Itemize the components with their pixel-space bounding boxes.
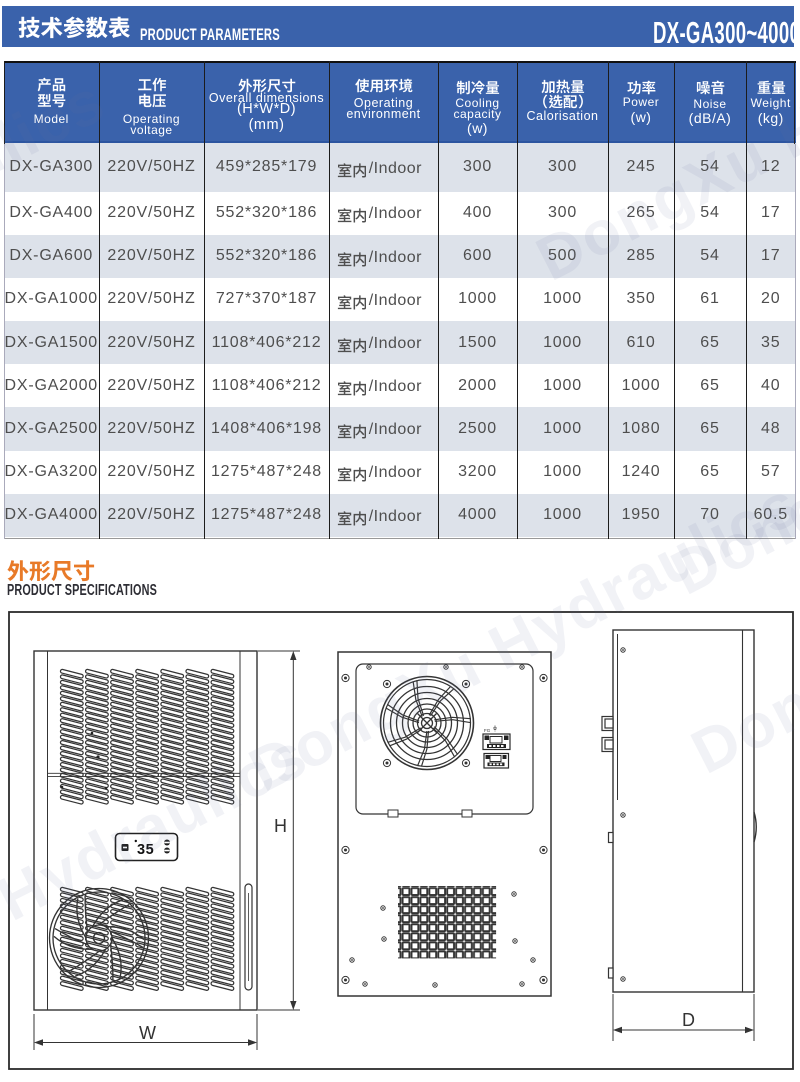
svg-text:FG: FG	[484, 728, 491, 733]
svg-text:W: W	[139, 1023, 156, 1043]
svg-text:35: 35	[137, 842, 154, 858]
svg-text:H: H	[274, 816, 287, 836]
svg-text:D: D	[682, 1010, 695, 1030]
